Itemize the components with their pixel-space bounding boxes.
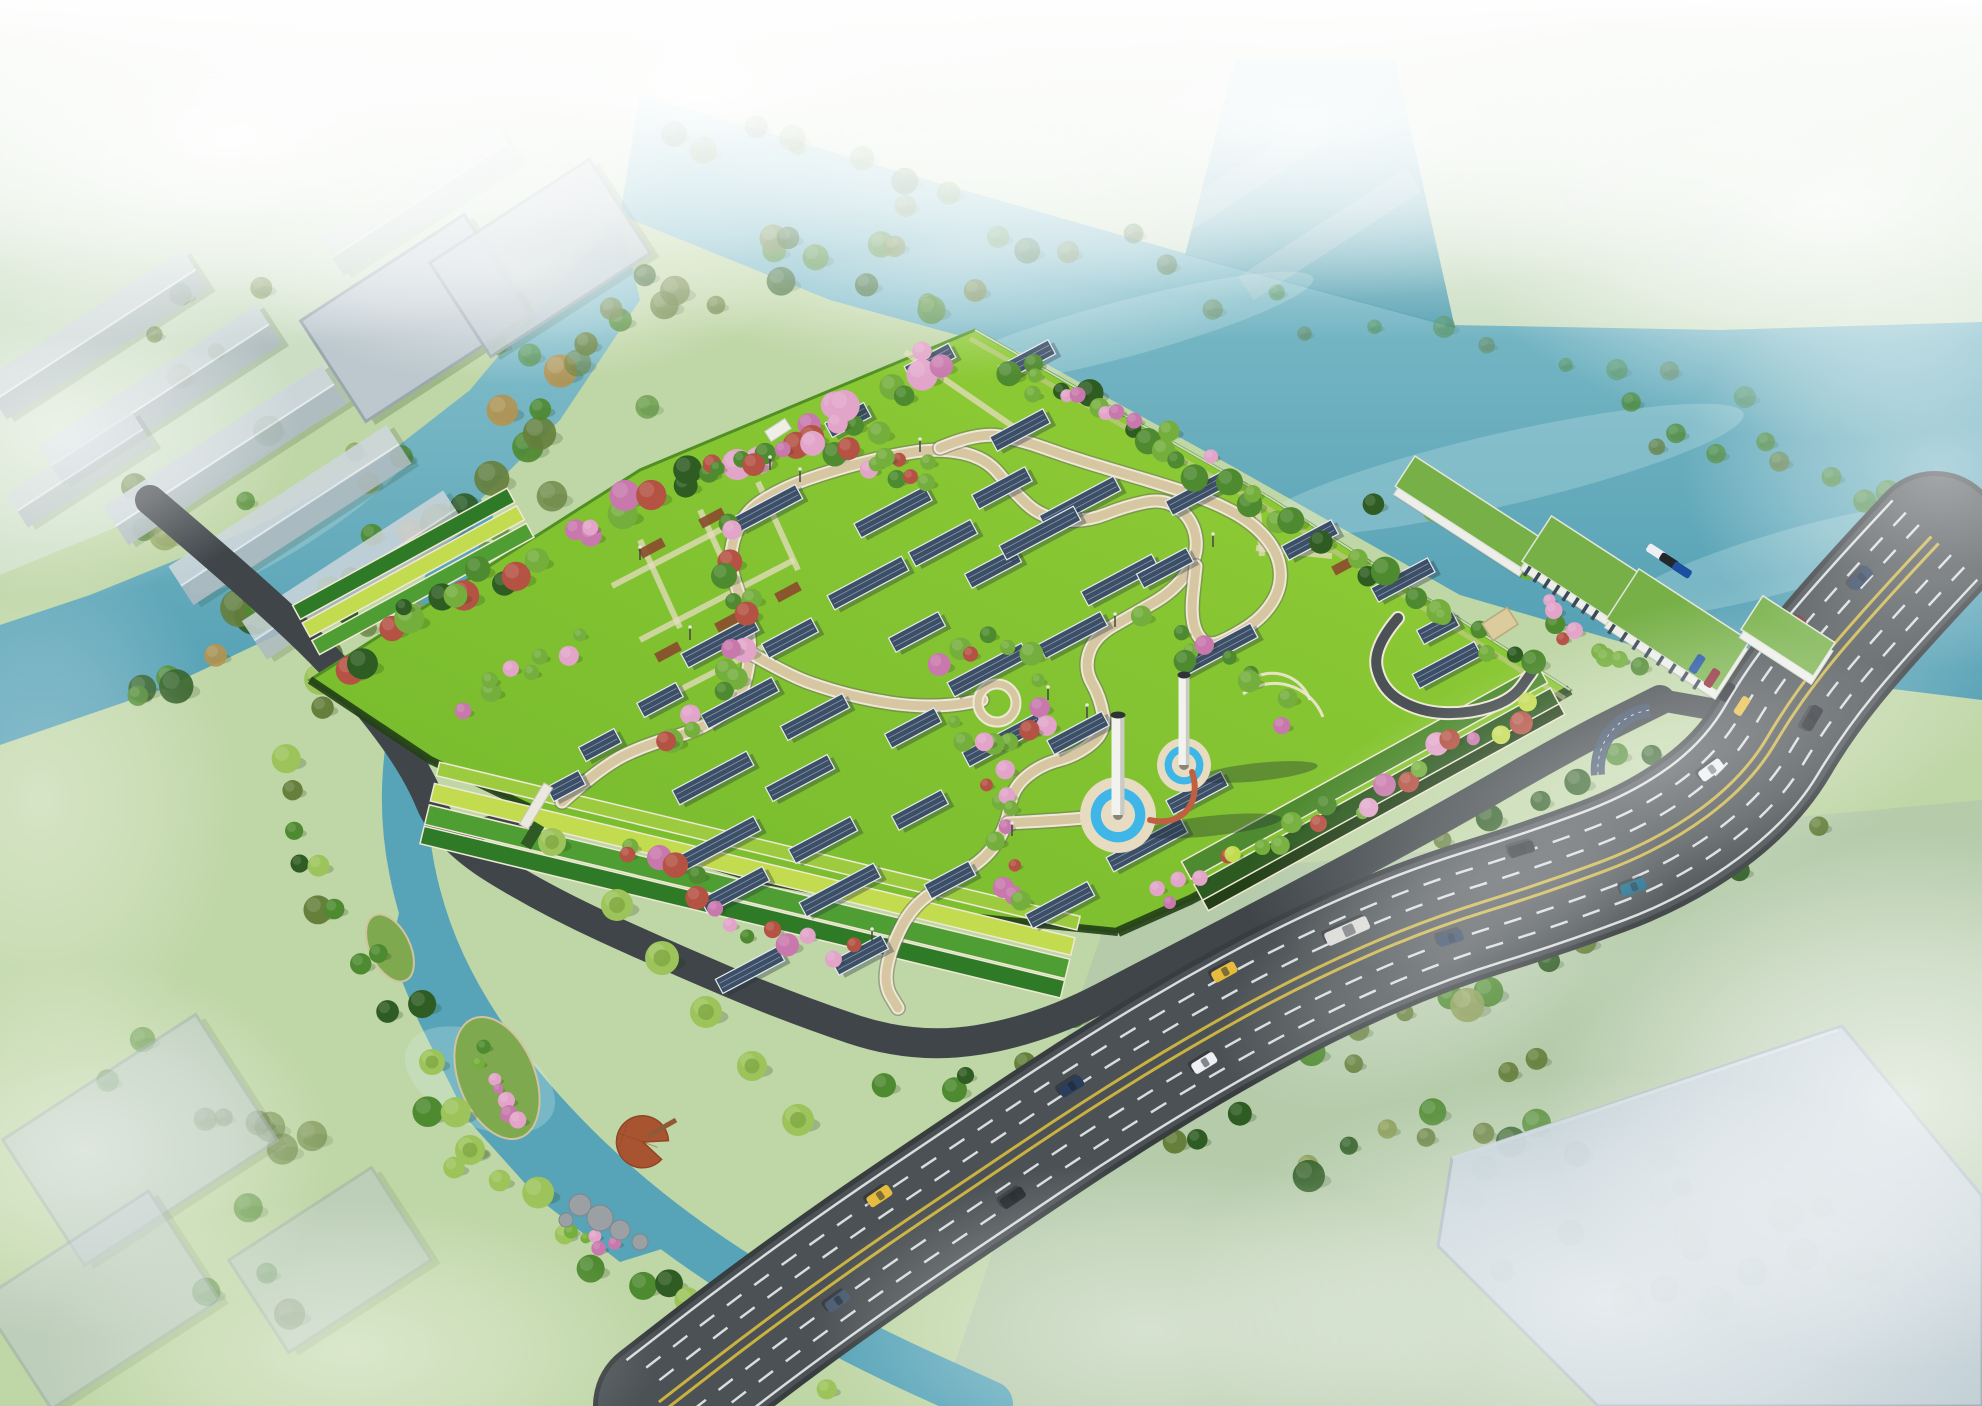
willow-center — [463, 1143, 478, 1158]
tree-highlight — [379, 1002, 390, 1013]
tree-highlight — [744, 590, 754, 600]
tree-highlight — [502, 1106, 511, 1115]
tree-highlight — [831, 392, 847, 408]
tree-highlight — [1013, 892, 1023, 902]
tree-highlight — [1194, 871, 1202, 879]
tree-highlight — [314, 698, 325, 709]
tree-highlight — [944, 1079, 957, 1092]
tree-highlight — [737, 603, 749, 615]
tree-highlight — [446, 586, 458, 598]
tree-highlight — [467, 558, 480, 571]
tree-highlight — [803, 433, 815, 445]
tree-highlight — [638, 397, 650, 409]
tree-highlight — [397, 600, 405, 608]
lamp-head — [768, 455, 772, 459]
tree-highlight — [952, 639, 963, 650]
tree-highlight — [567, 521, 578, 532]
tree-highlight — [624, 840, 632, 848]
tree-highlight — [575, 629, 582, 636]
tree-highlight — [1374, 559, 1388, 573]
tree-highlight — [665, 854, 678, 867]
tree-highlight — [411, 992, 425, 1006]
tree-highlight — [1033, 675, 1040, 682]
tree-highlight — [363, 526, 374, 537]
tree-highlight — [490, 397, 506, 413]
tree-highlight — [612, 482, 628, 498]
tree-highlight — [1022, 644, 1034, 656]
tree-highlight — [382, 618, 395, 631]
tree-highlight — [717, 683, 726, 692]
tower-top — [1178, 672, 1191, 679]
tree-highlight — [474, 1058, 480, 1064]
tree-highlight — [310, 856, 321, 867]
tree-highlight — [1650, 440, 1658, 448]
willow-center — [609, 897, 625, 913]
tree-highlight — [690, 868, 699, 877]
tree-highlight — [526, 419, 543, 436]
tree-highlight — [1224, 651, 1231, 658]
tree-highlight — [1350, 550, 1360, 560]
tree-highlight — [1110, 405, 1118, 413]
tree-highlight — [949, 716, 955, 722]
tree-highlight — [801, 929, 809, 937]
tree-highlight — [829, 415, 839, 425]
fog-top-band — [0, 0, 1982, 340]
tree-highlight — [1219, 470, 1232, 483]
tree-highlight — [584, 521, 592, 529]
tree-highlight — [1005, 802, 1013, 810]
willow-center — [745, 1059, 760, 1074]
tree-highlight — [1359, 567, 1369, 577]
tree-highlight — [1246, 486, 1255, 495]
tree-highlight — [1002, 641, 1010, 649]
tree-highlight — [478, 463, 496, 481]
tree-highlight — [727, 594, 735, 602]
tree-highlight — [649, 847, 662, 860]
tree-highlight — [686, 723, 694, 731]
tree-highlight — [490, 1074, 496, 1080]
tree-highlight — [483, 673, 491, 681]
tree-highlight — [1169, 453, 1178, 462]
tree-highlight — [494, 1085, 499, 1090]
tree-highlight — [1160, 422, 1171, 433]
tree-highlight — [1055, 384, 1063, 392]
tree-highlight — [1226, 847, 1234, 855]
tree-highlight — [870, 423, 881, 434]
tree-highlight — [778, 935, 790, 947]
tree-highlight — [590, 1231, 596, 1237]
tree-highlight — [275, 746, 290, 761]
tree-highlight — [1165, 897, 1171, 903]
tree-highlight — [682, 706, 692, 716]
tree-highlight — [1240, 672, 1251, 683]
willow-center — [654, 950, 671, 967]
tree-highlight — [1230, 1104, 1242, 1116]
tree-highlight — [1508, 648, 1516, 656]
tree-highlight — [206, 646, 217, 657]
tree-highlight — [1312, 532, 1324, 544]
tree-highlight — [561, 647, 571, 657]
tree-highlight — [533, 650, 541, 658]
tower-shading — [1120, 715, 1124, 815]
tree-highlight — [504, 662, 512, 670]
willow-center — [426, 1056, 439, 1069]
tree-highlight — [1000, 820, 1007, 827]
tree-highlight — [981, 628, 989, 636]
tree-highlight — [540, 483, 555, 498]
tree-highlight — [1176, 652, 1187, 663]
tree-highlight — [919, 475, 928, 484]
tree-highlight — [350, 651, 365, 666]
tree-highlight — [593, 1242, 600, 1249]
tree-highlight — [766, 922, 775, 931]
tree-highlight — [904, 470, 911, 477]
tree-highlight — [930, 655, 941, 666]
tree-highlight — [525, 1179, 541, 1195]
tree-highlight — [431, 585, 445, 599]
tree-highlight — [505, 564, 520, 579]
tree-highlight — [995, 878, 1006, 889]
willow-center — [545, 835, 559, 849]
tree-highlight — [1668, 425, 1678, 435]
tree-highlight — [1547, 603, 1556, 612]
tree-highlight — [456, 704, 464, 712]
tree-highlight — [1000, 789, 1008, 797]
tree-highlight — [889, 471, 898, 480]
tree-highlight — [1021, 721, 1031, 731]
tree-highlight — [1205, 450, 1212, 457]
aerial-rendering-stage — [0, 0, 1982, 1406]
tree-highlight — [581, 1234, 586, 1239]
tree-highlight — [800, 415, 812, 427]
tree-highlight — [1197, 637, 1207, 647]
tree-highlight — [527, 550, 539, 562]
tree-highlight — [621, 848, 629, 856]
tree-highlight — [500, 1093, 509, 1102]
tree-highlight — [1062, 390, 1069, 397]
tree-highlight — [1133, 607, 1143, 617]
willow-center — [698, 1004, 714, 1020]
tree-highlight — [776, 443, 784, 451]
tree-highlight — [1137, 430, 1150, 443]
tree-highlight — [1038, 717, 1048, 727]
tree-highlight — [825, 444, 837, 456]
tree-highlight — [292, 856, 301, 865]
tree-highlight — [306, 898, 320, 912]
tree-highlight — [712, 462, 719, 469]
tree-highlight — [1100, 407, 1107, 414]
tree-highlight — [877, 449, 887, 459]
tree-highlight — [1480, 646, 1488, 654]
tree-highlight — [1128, 414, 1136, 422]
tree-highlight — [478, 1041, 485, 1048]
tree-highlight — [444, 1099, 459, 1114]
willow-center — [790, 1112, 806, 1128]
tree-highlight — [658, 733, 668, 743]
tree-highlight — [632, 1274, 646, 1288]
tree-highlight — [287, 823, 296, 832]
tree-highlight — [848, 939, 855, 946]
tree-highlight — [525, 666, 533, 674]
tree-highlight — [658, 1271, 672, 1285]
tree-highlight — [964, 648, 972, 656]
site-plan-rendering — [0, 0, 1982, 1406]
tree-highlight — [511, 1113, 520, 1122]
tree-highlight — [1568, 623, 1576, 631]
tree-highlight — [1031, 699, 1041, 709]
tree-highlight — [676, 457, 690, 471]
tree-highlight — [1172, 873, 1180, 881]
rock — [587, 1205, 613, 1231]
tree-highlight — [1472, 622, 1481, 631]
tree-highlight — [839, 439, 850, 450]
lamp-head — [688, 625, 692, 629]
tree-highlight — [352, 955, 363, 966]
tree-highlight — [735, 452, 743, 460]
lamp-head — [918, 437, 922, 441]
tree-highlight — [709, 902, 717, 910]
tree-highlight — [1175, 626, 1183, 634]
tree-highlight — [997, 761, 1007, 771]
tree-highlight — [717, 660, 728, 671]
lamp-head — [798, 467, 802, 471]
tree-highlight — [874, 1075, 886, 1087]
tree-highlight — [882, 376, 895, 389]
lamp-head — [1113, 612, 1117, 616]
tower-shading — [1186, 675, 1190, 765]
tree-highlight — [987, 833, 997, 843]
tree-highlight — [1010, 860, 1016, 866]
lamp-head — [1046, 685, 1050, 689]
tree-highlight — [1154, 440, 1166, 452]
tree-highlight — [532, 400, 543, 411]
tree-highlight — [1275, 718, 1284, 727]
rock — [559, 1213, 573, 1227]
tree-highlight — [688, 888, 700, 900]
tree-highlight — [896, 387, 906, 397]
tree-highlight — [724, 522, 734, 532]
rock — [610, 1220, 630, 1240]
tree-highlight — [1151, 882, 1159, 890]
tree-highlight — [1091, 399, 1101, 409]
tree-highlight — [827, 952, 835, 960]
tree-highlight — [371, 946, 380, 955]
tree-highlight — [326, 900, 336, 910]
tree-highlight — [742, 931, 749, 938]
rock — [632, 1234, 648, 1250]
tree-highlight — [445, 1158, 456, 1169]
tree-highlight — [1183, 466, 1197, 480]
tree-highlight — [284, 782, 294, 792]
tree-highlight — [724, 919, 731, 926]
tree-highlight — [745, 455, 756, 466]
tower-top — [1111, 712, 1126, 719]
tree-highlight — [1189, 1131, 1199, 1141]
tree-highlight — [955, 734, 965, 744]
tree-highlight — [977, 734, 986, 743]
lamp-head — [638, 545, 642, 549]
tree-highlight — [1280, 690, 1290, 700]
tree-highlight — [1436, 609, 1445, 618]
tree-highlight — [1026, 387, 1034, 395]
tree-highlight — [714, 565, 727, 578]
tree-highlight — [727, 669, 738, 680]
tree-highlight — [1071, 388, 1079, 396]
tree-highlight — [1544, 595, 1550, 601]
tree-highlight — [723, 640, 733, 650]
tree-highlight — [1407, 589, 1418, 600]
tree-highlight — [922, 456, 930, 464]
tree-highlight — [981, 779, 987, 785]
tree-highlight — [720, 551, 732, 563]
lamp-head — [1085, 703, 1089, 707]
tree-highlight — [959, 1068, 968, 1077]
tree-highlight — [1280, 509, 1293, 522]
tree-highlight — [1365, 495, 1376, 506]
tree-highlight — [491, 1171, 502, 1182]
lamp-head — [1211, 532, 1215, 536]
tree-highlight — [416, 1099, 431, 1114]
lamp-head — [870, 927, 874, 931]
tree-highlight — [639, 482, 654, 497]
tree-highlight — [757, 444, 768, 455]
lamp-head — [1010, 821, 1014, 825]
